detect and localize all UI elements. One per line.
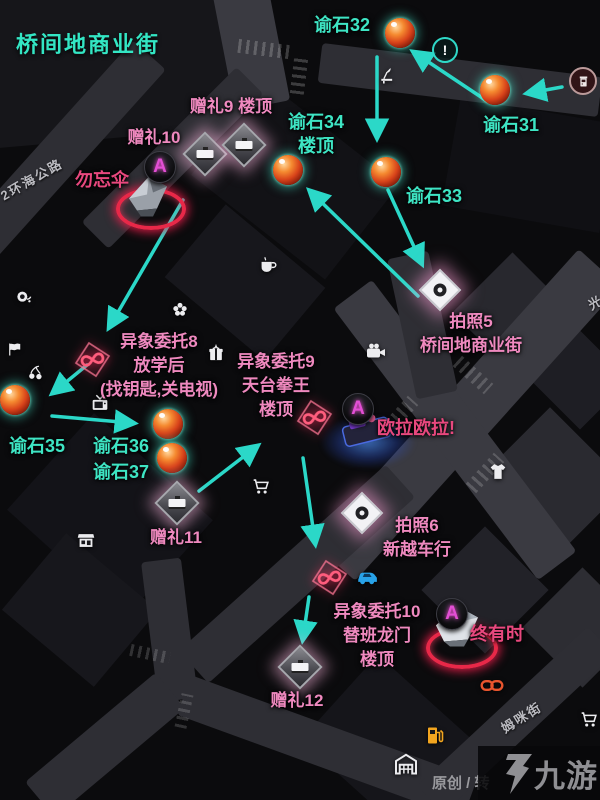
rank-a-badge: A <box>342 393 374 425</box>
cherry-icon <box>26 365 46 390</box>
gift-label: 赠礼10 <box>128 126 181 150</box>
yushi-label: 谕石34楼顶 <box>288 110 344 158</box>
map-title: 桥间地商业街 <box>16 27 160 59</box>
cart-icon <box>250 476 272 503</box>
photo-label: 拍照6新越车行 <box>383 514 451 562</box>
watermark-logo: 九游 <box>500 751 598 796</box>
yushi-orb-marker[interactable] <box>0 385 30 415</box>
yushi-orb-marker[interactable] <box>480 75 510 105</box>
yushi-orb-marker[interactable] <box>153 409 183 439</box>
yushi-label: 谕石32 <box>314 13 370 37</box>
rank-a-badge: A <box>436 598 468 630</box>
video-camera-icon <box>364 340 388 369</box>
anomaly-label: 异象委托10替班龙门楼顶 <box>334 600 421 672</box>
character-label: 勿忘伞 <box>75 168 129 192</box>
yushi-orb-marker[interactable] <box>371 157 401 187</box>
game-map: 桥间地商业街 2环海公路姆咪街光谕石31谕石32谕石33谕石34楼顶谕石35谕石… <box>0 0 600 800</box>
flag-icon <box>6 341 24 364</box>
yushi-orb-marker[interactable] <box>273 155 303 185</box>
arcade-icon <box>569 67 597 95</box>
tshirt-icon <box>487 461 509 488</box>
character-label: 终有时 <box>470 622 524 646</box>
desk-lamp-icon <box>378 66 398 91</box>
fuel-icon <box>423 724 447 753</box>
snail-icon <box>14 288 34 313</box>
yushi-label: 谕石37 <box>93 460 149 484</box>
photo-label: 拍照5桥间地商业街 <box>420 310 522 358</box>
cart-icon <box>578 709 600 736</box>
yushi-label: 谕石31 <box>483 113 539 137</box>
coffee-icon <box>257 255 279 282</box>
exclaim-icon: ! <box>432 37 458 63</box>
kiosk-icon <box>75 530 97 557</box>
nine-game-logo-icon <box>500 752 534 796</box>
car-icon <box>355 565 381 596</box>
yushi-orb-marker[interactable] <box>157 443 187 473</box>
yushi-orb-marker[interactable] <box>385 18 415 48</box>
yushi-label: 谕石33 <box>406 184 462 208</box>
gift-label: 赠礼12 <box>271 689 324 713</box>
watermark-brand: 九游 <box>534 751 598 796</box>
link-icon <box>479 673 505 704</box>
character-label: 欧拉欧拉! <box>377 416 455 440</box>
yushi-label: 谕石36 <box>93 434 149 458</box>
anomaly-label: 异象委托9天台拳王楼顶 <box>237 350 314 422</box>
rank-a-badge: A <box>144 151 176 183</box>
flower-icon <box>170 300 190 325</box>
gift-label: 赠礼11 <box>150 526 202 550</box>
warehouse-icon <box>391 749 421 784</box>
gift-label: 赠礼9 楼顶 <box>190 95 272 119</box>
yushi-label: 谕石35 <box>9 434 65 458</box>
anomaly-label: 异象委托8放学后(找钥匙,关电视) <box>100 330 218 402</box>
